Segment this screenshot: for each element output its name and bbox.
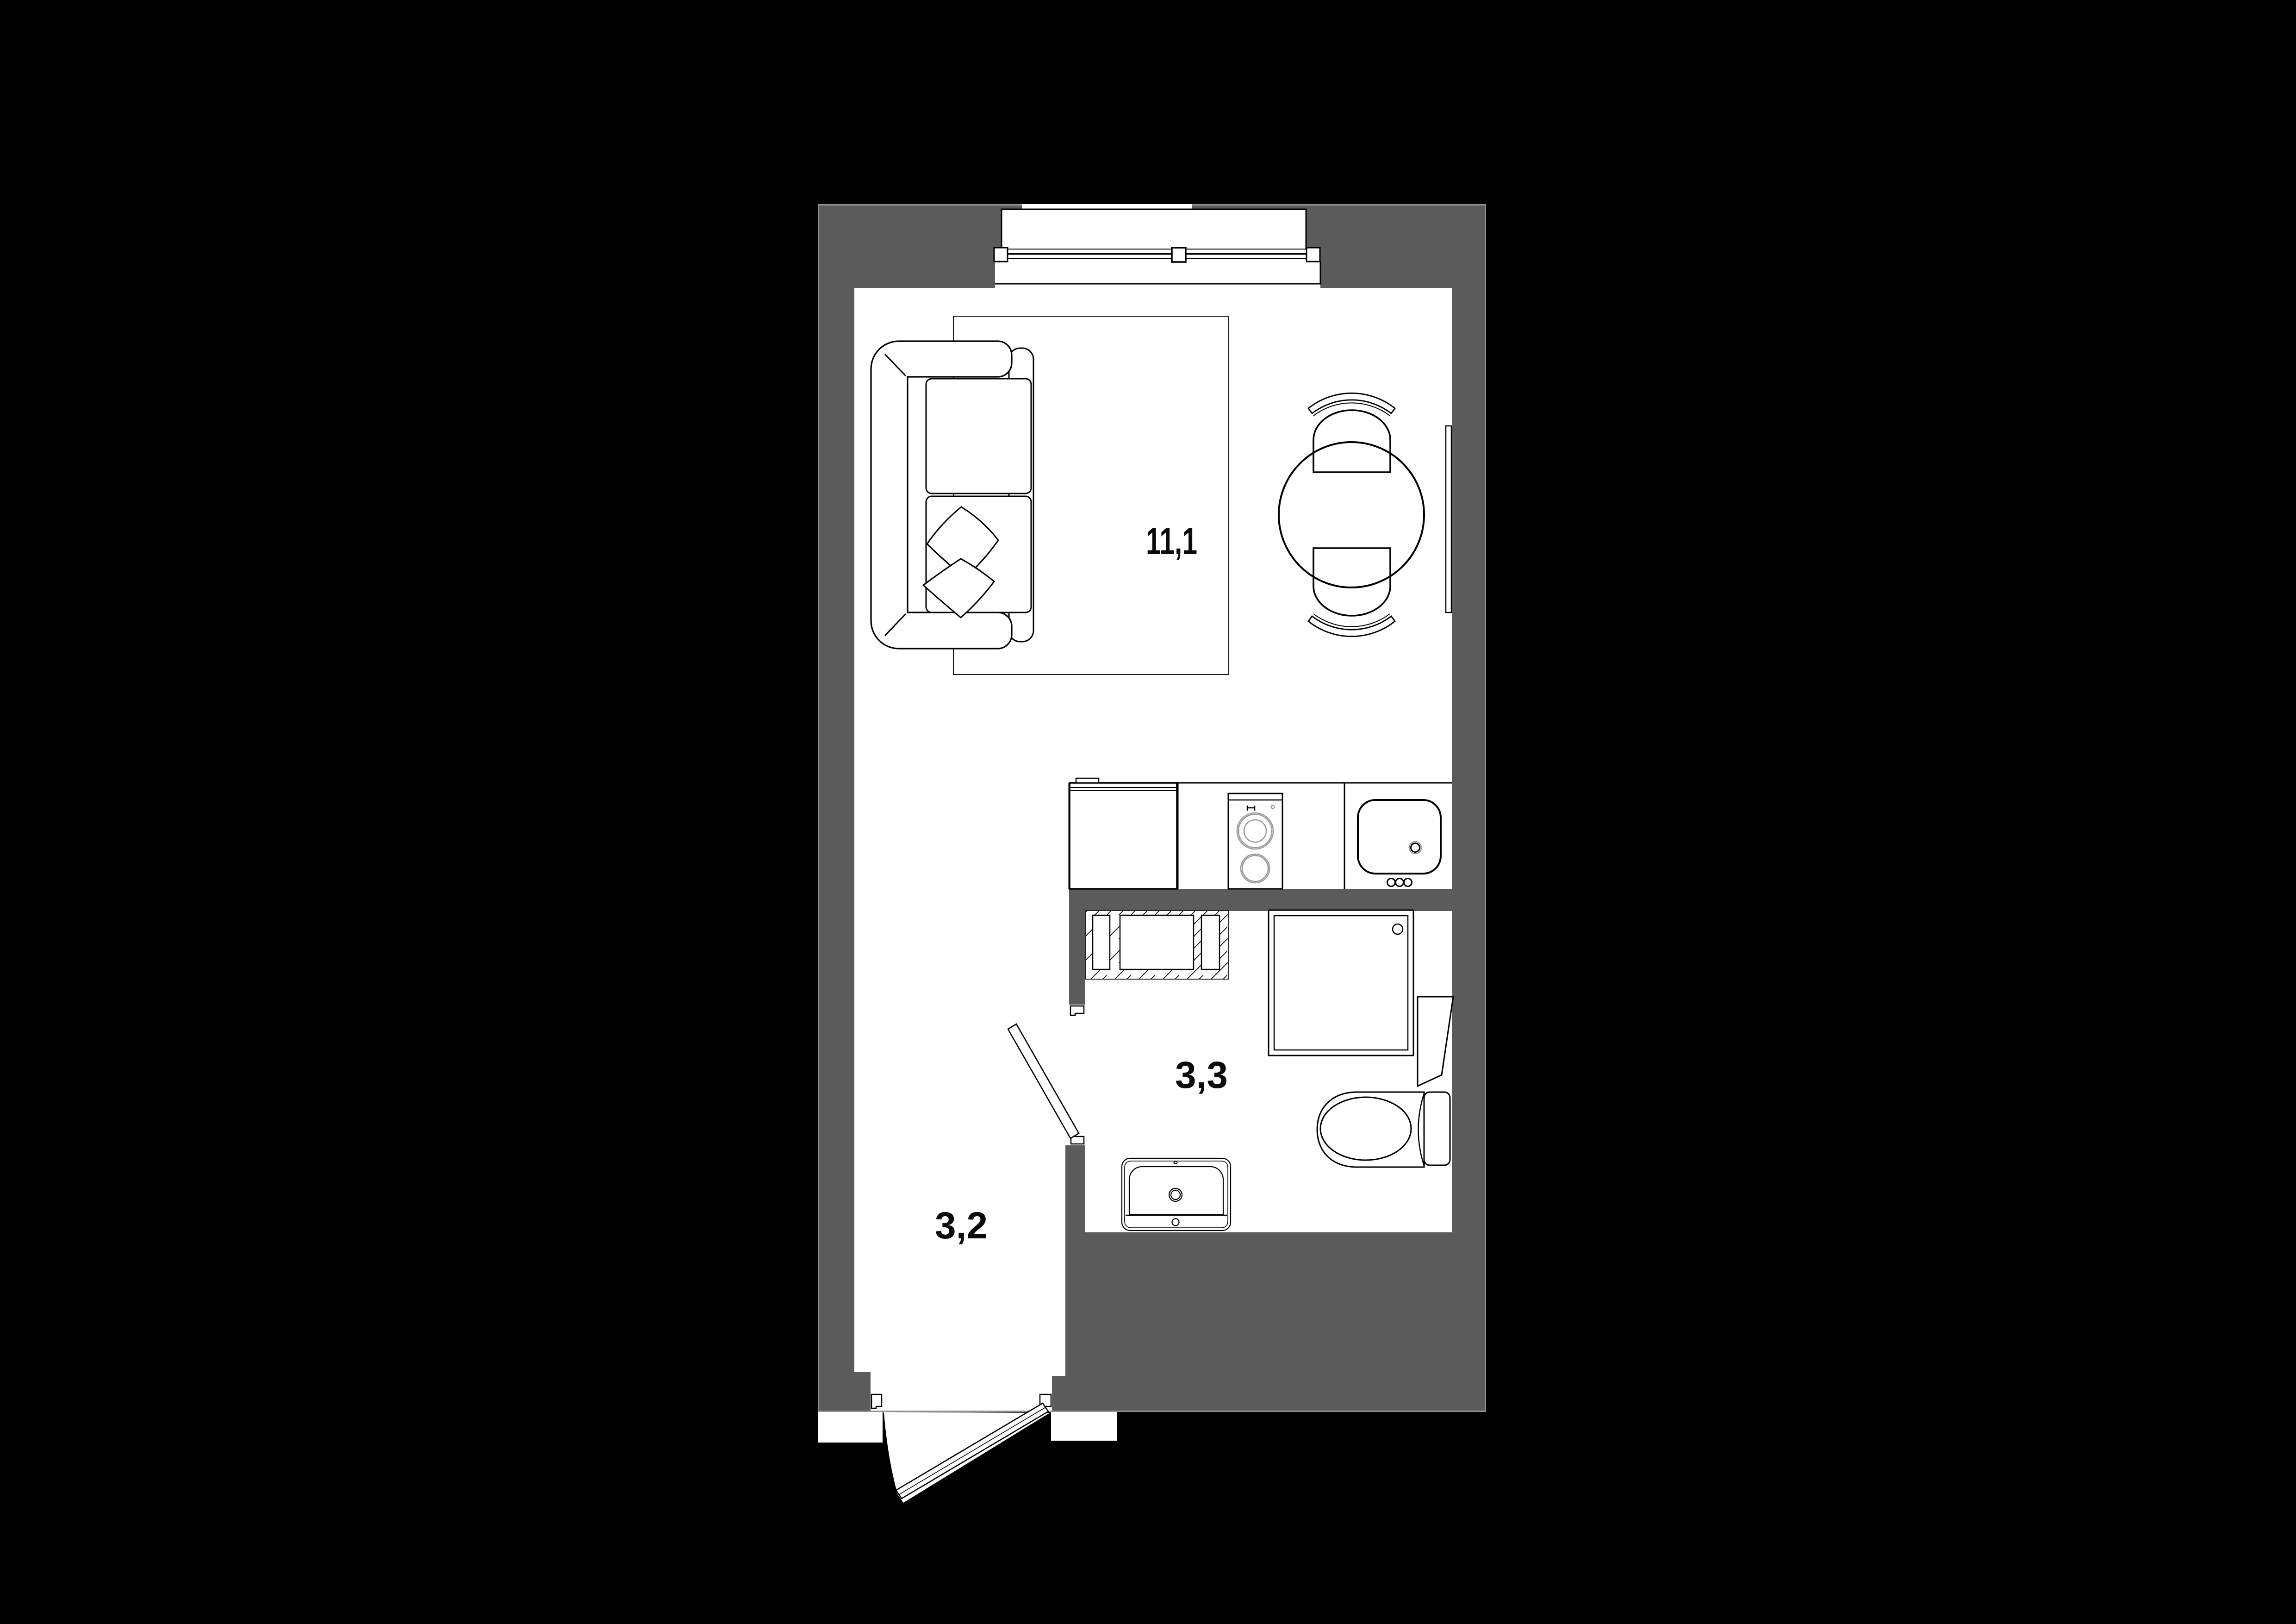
svg-text:3,3: 3,3 — [1175, 1054, 1228, 1096]
svg-text:11,1: 11,1 — [1146, 520, 1197, 562]
svg-text:3,2: 3,2 — [935, 1205, 988, 1247]
